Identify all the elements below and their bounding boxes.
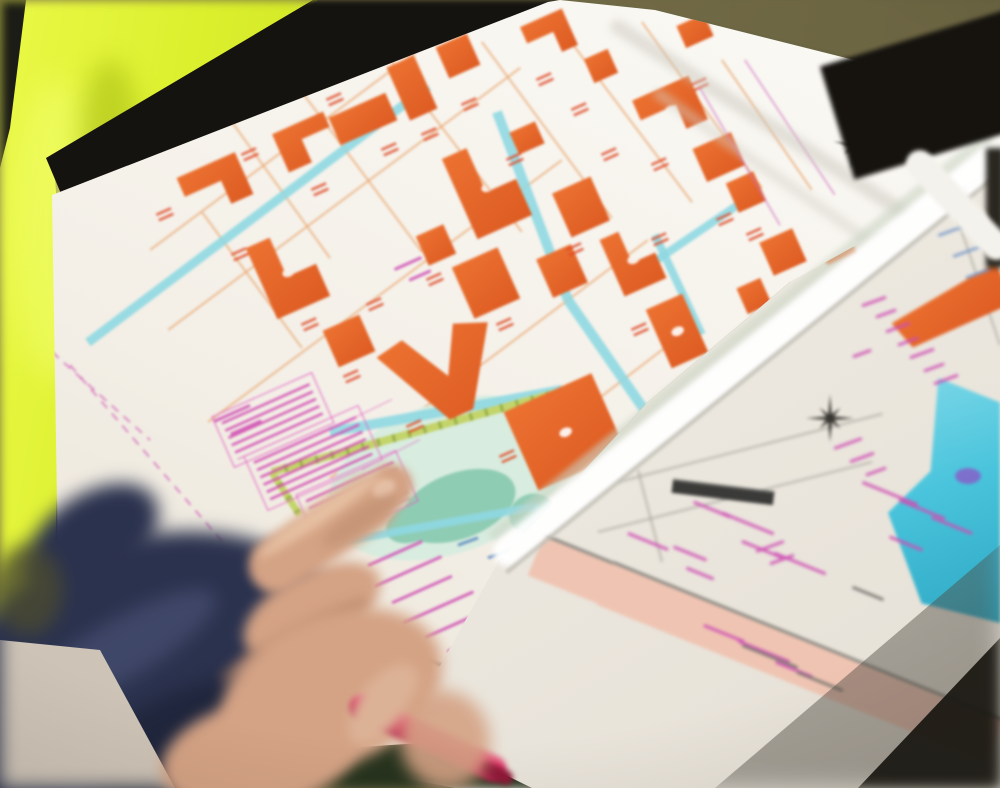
lot-label-red (746, 227, 764, 242)
annotation-pink (627, 532, 669, 551)
building (176, 152, 253, 220)
building (759, 228, 807, 276)
building-door-mark (670, 324, 686, 338)
margin-line-pink (744, 60, 835, 196)
lot-label-red (156, 207, 174, 222)
lot-label-red (343, 369, 361, 384)
building (552, 177, 610, 238)
lot-label-red (496, 317, 514, 332)
annotation-pink (773, 552, 826, 576)
annotation-pink (721, 512, 774, 536)
boundary-dashed-line (51, 351, 150, 440)
building (646, 294, 709, 369)
building-door-mark (281, 265, 297, 279)
lot-label-red (601, 147, 619, 162)
building-door-mark (558, 425, 574, 439)
annotation-pink (686, 566, 715, 580)
building (452, 247, 520, 318)
building (520, 8, 578, 63)
annotation-pink (852, 349, 872, 359)
building (584, 49, 618, 83)
building-door-mark (626, 252, 642, 266)
annotation-pink (923, 362, 945, 372)
building (599, 221, 666, 296)
water-purple-mark (955, 468, 981, 484)
annotation-pink (875, 308, 897, 318)
lot-label-red (421, 127, 439, 142)
annotation-pink (865, 466, 887, 476)
annotation-pink (861, 296, 886, 308)
lot-label-red (461, 97, 479, 112)
section-line-mark (852, 586, 885, 602)
lot-label-red (381, 142, 399, 157)
lot-label-red (366, 297, 384, 312)
annotation-pink (394, 256, 423, 271)
lot-label-red (571, 102, 589, 117)
lot-label-red (311, 182, 329, 197)
annotation-pink (909, 348, 934, 360)
lot-label-red (536, 72, 554, 87)
lot-label-red (631, 322, 649, 337)
lot-label-red (231, 247, 249, 262)
building (323, 315, 376, 368)
lot-label-red (241, 147, 259, 162)
lot-label-red (426, 272, 444, 287)
drawing-title-bar (672, 479, 775, 505)
building-orange-partial (886, 262, 1000, 351)
lot-label-red (301, 317, 319, 332)
building (416, 224, 456, 265)
photograph-canvas (0, 0, 1000, 788)
annotation-pink (673, 545, 708, 561)
annotation-pink (391, 575, 453, 605)
compass-star-icon (806, 394, 854, 442)
